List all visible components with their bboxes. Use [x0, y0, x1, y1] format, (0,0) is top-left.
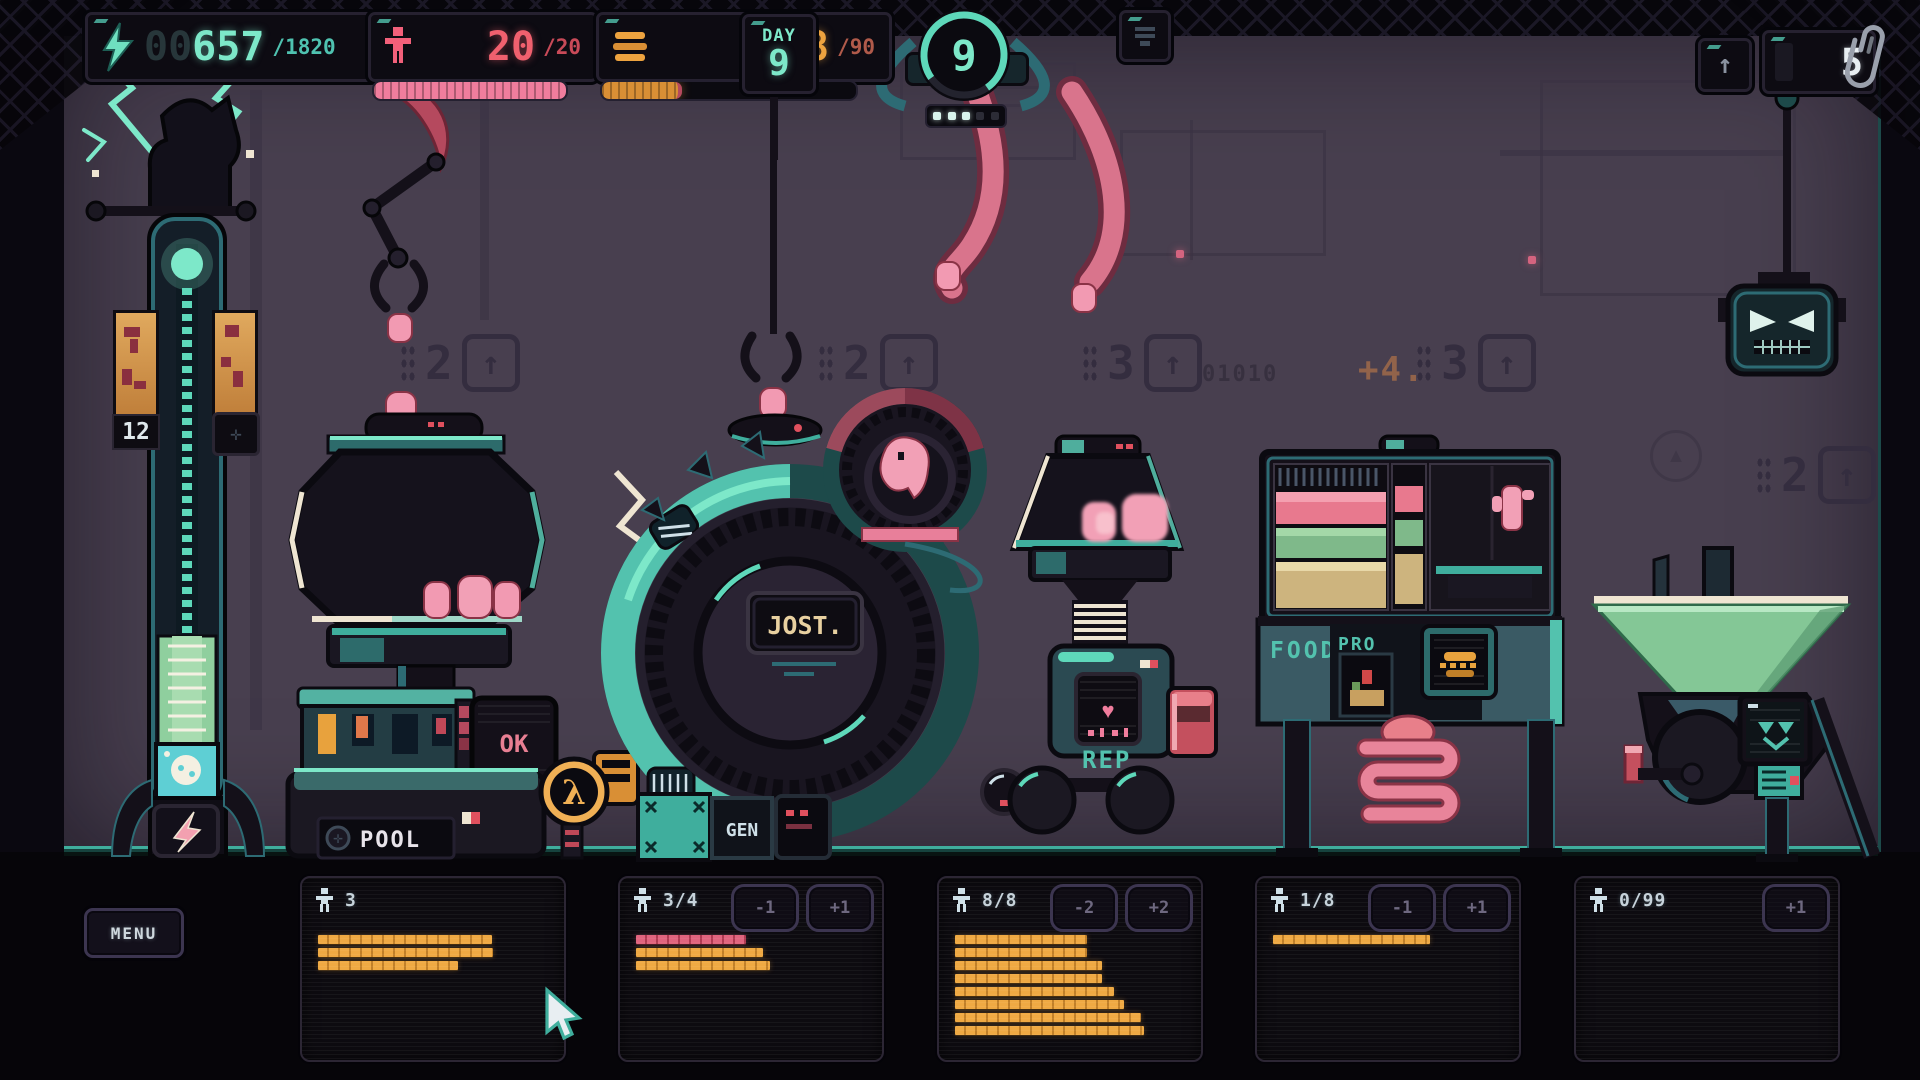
up-arrow-icon: ↑: [1717, 50, 1733, 80]
progress-bar: [955, 935, 1087, 944]
progress-bar: [636, 948, 763, 957]
panel-bars: [636, 935, 770, 970]
angry-robot: [1718, 286, 1846, 374]
tower-counter: 12: [112, 414, 160, 450]
worker-panel[interactable]: 3/4 -1+1: [618, 876, 884, 1062]
cycle-dial: 9: [915, 6, 1013, 104]
remove-worker-button[interactable]: -1: [731, 884, 799, 932]
worker-panel[interactable]: 8/8 -2+2: [937, 876, 1203, 1062]
claw-icon: [374, 264, 423, 308]
person-icon: [634, 888, 651, 912]
grinder-machine[interactable]: [1580, 540, 1890, 865]
lambda-icon: λ: [562, 773, 586, 813]
ok-label: OK: [500, 730, 529, 758]
add-worker-button[interactable]: +1: [806, 884, 874, 932]
amber-cell-left: [113, 310, 159, 418]
cycle-dot-lit: [933, 112, 941, 120]
add-worker-button[interactable]: +1: [1762, 884, 1830, 932]
red-canister: [1168, 688, 1216, 756]
lightning-icon: [100, 23, 134, 71]
panel-bars: [955, 935, 1144, 1035]
progress-bar: [955, 1026, 1144, 1035]
person-icon: [385, 27, 411, 67]
food-max: /90: [837, 37, 875, 58]
jobs-sign-label: JOST.: [767, 611, 842, 640]
worker-count: 3: [345, 890, 357, 911]
upgrade-box[interactable]: ↑: [1698, 38, 1752, 92]
food-stacks: [1276, 492, 1386, 608]
gen-label: GEN: [726, 820, 759, 841]
pool-label: POOL: [360, 828, 421, 853]
pool-blobs: [424, 576, 520, 618]
progress-bar: [955, 974, 1102, 983]
menu-label: MENU: [111, 924, 158, 943]
mouse-cursor: [545, 990, 585, 1046]
progress-bar: [636, 935, 746, 944]
energy-counter: 00657 /1820: [85, 12, 377, 82]
progress-bar: [318, 935, 492, 944]
machine-leg: [1528, 720, 1554, 852]
crane-arm: [372, 162, 436, 258]
cycle-dots: [925, 104, 1007, 128]
food-bar-fill: [602, 82, 682, 99]
panel-header: 8/8: [953, 888, 1018, 912]
person-icon: [953, 888, 970, 912]
progress-bar: [955, 1000, 1124, 1009]
progress-bar: [955, 961, 1102, 970]
remove-worker-button[interactable]: -1: [1368, 884, 1436, 932]
plasma-orb: [171, 248, 203, 280]
progress-bar: [955, 1013, 1141, 1022]
day-sign-pole: [770, 84, 778, 160]
menu-button[interactable]: MENU: [84, 908, 184, 958]
worker-count: 0/99: [1619, 890, 1666, 911]
add-worker-button[interactable]: +1: [1443, 884, 1511, 932]
progress-bar: [318, 948, 493, 957]
day-value: 9: [768, 46, 790, 82]
food-bar: [600, 80, 858, 101]
svg-text:✛: ✛: [333, 832, 343, 846]
pro-label: PRO: [1338, 634, 1377, 655]
module-slot[interactable]: [1119, 10, 1171, 62]
worker-count: 3/4: [663, 890, 699, 911]
population-counter: 20 /20: [368, 12, 598, 82]
population-max: /20: [543, 37, 581, 58]
gen-unit[interactable]: GEN: [638, 794, 830, 860]
energy-pad: 00: [144, 27, 192, 67]
person-icon: [316, 888, 333, 912]
hanging-blob: [388, 314, 412, 342]
claw-icon: [745, 336, 797, 378]
machine-leg: [1284, 720, 1310, 852]
remove-worker-button[interactable]: -2: [1050, 884, 1118, 932]
panel-bars: [318, 935, 493, 970]
ball-wheel: [1108, 768, 1172, 832]
rations-icon: [613, 32, 647, 62]
food-machine[interactable]: FOOD PRO: [1250, 430, 1575, 865]
population-bar: [372, 80, 568, 101]
worker-panel[interactable]: 0/99 +1: [1574, 876, 1840, 1062]
energy-value: 657: [192, 27, 264, 67]
cycle-dot-lit: [948, 112, 956, 120]
progress-bar: [955, 987, 1114, 996]
panel-header: 0/99: [1590, 888, 1666, 912]
green-funnel: [1594, 605, 1848, 700]
panel-header: 3: [316, 888, 357, 912]
tower-sculpture: [150, 98, 239, 212]
energy-max: /1820: [272, 37, 335, 58]
panel-header: 1/8: [1271, 888, 1336, 912]
tower-plus-button[interactable]: ✛: [212, 412, 260, 456]
population-value: 20: [487, 27, 535, 67]
cycle-dot-lit: [962, 112, 970, 120]
ball-wheel: [1010, 768, 1074, 832]
cycle-dot-off: [976, 112, 984, 120]
progress-bar: [318, 961, 458, 970]
day-counter: DAY 9: [742, 14, 816, 94]
progress-bar: [636, 961, 770, 970]
intestine-graphic: [1366, 716, 1451, 814]
game-screen: ▲ 01010 +4. 2 ↑ 2 ↑ 3 ↑ 3 ↑ 2 ↑: [0, 0, 1920, 1080]
worker-count: 1/8: [1300, 890, 1336, 911]
worker-panel[interactable]: 1/8 -1+1: [1255, 876, 1521, 1062]
panel-bars: [1273, 935, 1430, 944]
cycle-value: 9: [951, 31, 976, 80]
population-bar-fill: [374, 82, 566, 99]
progress-bar: [1273, 935, 1430, 944]
panel-header: 3/4: [634, 888, 699, 912]
energy-tower[interactable]: [60, 40, 310, 860]
module-icon: [1133, 24, 1157, 48]
add-worker-button[interactable]: +2: [1125, 884, 1193, 932]
worker-count: 8/8: [982, 890, 1018, 911]
worker-panel[interactable]: 3: [300, 876, 566, 1062]
person-icon: [1271, 888, 1288, 912]
food-label: FOOD: [1270, 638, 1337, 664]
heart-icon: ♥: [1101, 698, 1114, 723]
person-icon: [1590, 888, 1607, 912]
pro-window: [1340, 654, 1392, 716]
burger-screen: [1430, 634, 1488, 690]
progress-bar: [955, 948, 1087, 957]
cycle-dot-off: [991, 112, 999, 120]
rep-machine[interactable]: ♥ REP: [985, 420, 1225, 865]
amber-cell-right: [212, 310, 258, 418]
